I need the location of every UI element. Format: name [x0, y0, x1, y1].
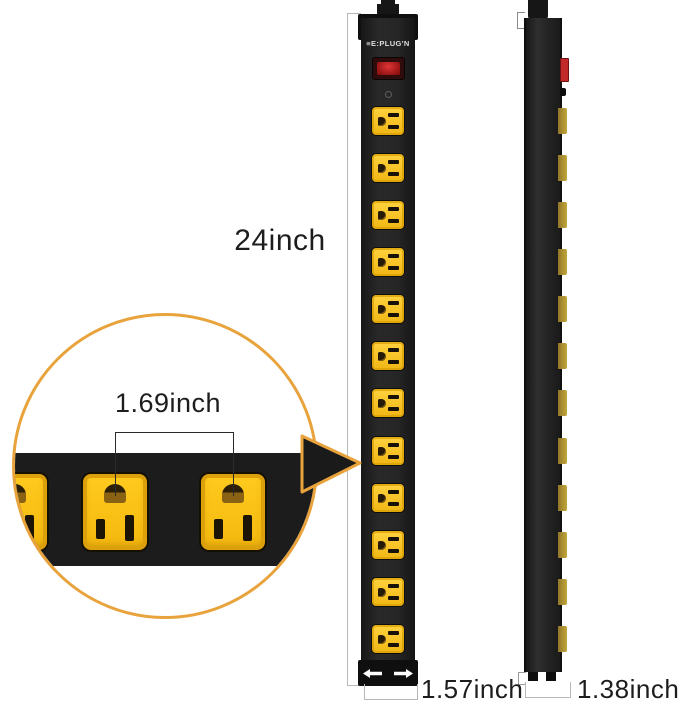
outlet-slot [388, 490, 399, 494]
outlet-slot [388, 266, 399, 270]
callout-outlet-partial [12, 472, 49, 552]
screw-icon [385, 91, 392, 98]
side-outlet-tab-list [558, 108, 567, 652]
outlet-ground-hole [378, 117, 386, 126]
outlet-slot [388, 643, 399, 647]
outlet-ground-hole [12, 484, 26, 503]
outlet-edge-tab [558, 438, 567, 464]
front-outlet-list [371, 106, 405, 654]
outlet-edge-tab [558, 296, 567, 322]
outlet-slot [388, 537, 399, 541]
brand-logo: ≡E:PLUG'N [358, 39, 418, 48]
outlet-edge-tab [558, 579, 567, 605]
brand-logo-text: E:PLUG'N [371, 39, 410, 48]
outlet-slot [388, 207, 399, 211]
product-dimension-diagram: 24inch ≡E:PLUG'N [0, 0, 679, 705]
outlet-slot [388, 407, 399, 411]
height-dimension-line [347, 13, 348, 685]
keyhole-slot-icon [363, 669, 382, 678]
bottom-foot [528, 672, 538, 681]
outlet [371, 153, 405, 183]
outlet-slot [388, 395, 399, 399]
outlet-edge-tab [558, 343, 567, 369]
width-label: 1.57inch [421, 674, 523, 705]
outlet [371, 577, 405, 607]
callout-pointer-icon [296, 430, 362, 498]
outlet-ground-hole [378, 258, 386, 267]
outlet-slot [96, 519, 105, 539]
outlet-edge-tab [558, 485, 567, 511]
outlet-slot [388, 502, 399, 506]
outlet-ground-hole [378, 447, 386, 456]
outlet-ground-hole [378, 399, 386, 408]
outlet-slot [243, 515, 252, 541]
outlet-spacing-label: 1.69inch [43, 388, 293, 419]
height-label: 24inch [205, 224, 355, 258]
outlet-slot [388, 360, 399, 364]
outlet [371, 388, 405, 418]
outlet-edge-tab [558, 390, 567, 416]
spacing-dimension-line [115, 432, 234, 433]
width-dimension-bracket [364, 684, 418, 700]
outlet-edge-tab [558, 249, 567, 275]
power-switch-rocker [377, 62, 400, 75]
outlet-ground-hole [378, 211, 386, 220]
mounting-bracket-bottom [358, 660, 418, 686]
outlet-slot [388, 172, 399, 176]
outlet-slot [388, 313, 399, 317]
outlet [371, 247, 405, 277]
spacing-dimension-tick-left [115, 432, 116, 496]
outlet-slot [388, 113, 399, 117]
bottom-foot [546, 672, 556, 681]
outlet-ground-hole [378, 541, 386, 550]
outlet-slot [388, 301, 399, 305]
outlet-slot [388, 125, 399, 129]
power-switch-side [560, 58, 569, 82]
strip-body-side [524, 18, 562, 672]
outlet [371, 341, 405, 371]
outlet-slot [388, 219, 399, 223]
outlet [371, 530, 405, 560]
outlet-slot [388, 254, 399, 258]
outlet-slot [388, 160, 399, 164]
power-strip-side-view [516, 0, 580, 705]
outlet [371, 483, 405, 513]
outlet-edge-tab [558, 202, 567, 228]
power-strip-front-view: ≡E:PLUG'N [358, 0, 418, 705]
keyhole-slot-icon [394, 669, 413, 678]
spacing-dimension-tick-right [233, 432, 234, 496]
outlet-slot [388, 584, 399, 588]
outlet-slot [214, 519, 223, 539]
outlet-slot [125, 515, 134, 541]
outlet-edge-tab [558, 626, 567, 652]
outlet [371, 106, 405, 136]
outlet-ground-hole [378, 635, 386, 644]
outlet-slot [388, 443, 399, 447]
outlet-ground-hole [378, 164, 386, 173]
depth-label: 1.38inch [577, 674, 679, 705]
outlet-slot [388, 455, 399, 459]
outlet-ground-hole [378, 494, 386, 503]
zoom-callout-circle: 1.69inch [12, 313, 318, 619]
outlet-slot [388, 549, 399, 553]
power-cord-side [528, 0, 548, 20]
screw-knob-side [560, 88, 566, 96]
outlet-slot [388, 596, 399, 600]
outlet-edge-tab [558, 532, 567, 558]
outlet [371, 624, 405, 654]
outlet-slot [388, 631, 399, 635]
outlet-edge-tab [558, 155, 567, 181]
outlet [371, 200, 405, 230]
outlet-edge-tab [558, 108, 567, 134]
power-switch [372, 57, 405, 80]
outlet-slot [388, 348, 399, 352]
outlet-slot [25, 515, 34, 541]
outlet-ground-hole [378, 588, 386, 597]
outlet-ground-hole [378, 352, 386, 361]
outlet-ground-hole [378, 305, 386, 314]
callout-strip-band [12, 453, 318, 566]
depth-dimension-bracket [525, 682, 571, 698]
outlet [371, 294, 405, 324]
outlet [371, 436, 405, 466]
